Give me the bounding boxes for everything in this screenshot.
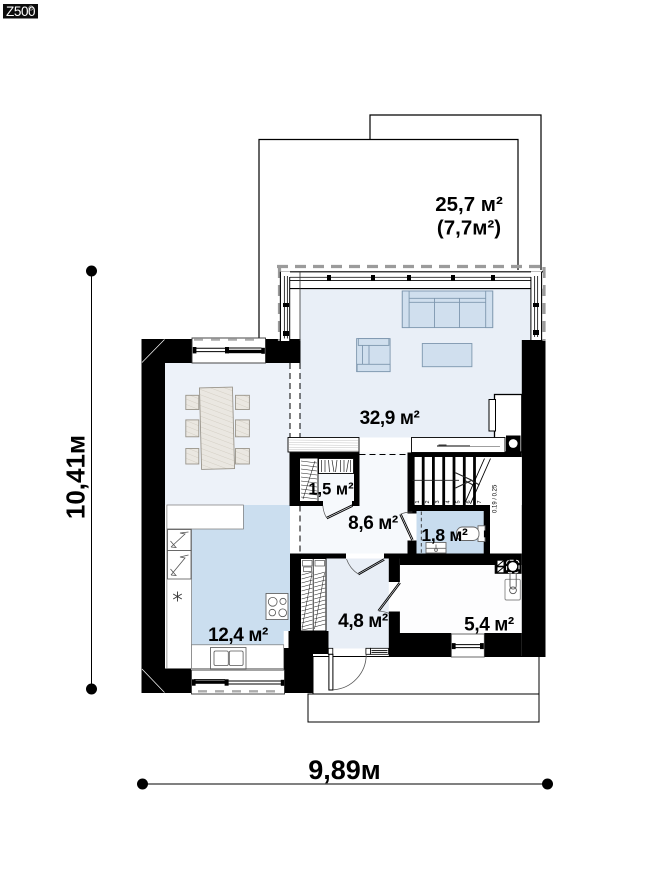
- svg-text:4: 4: [445, 500, 451, 503]
- svg-text:7: 7: [477, 500, 483, 503]
- svg-text:©: ©: [29, 5, 34, 13]
- svg-text:1: 1: [415, 500, 421, 503]
- svg-text:0.19 / 0.25: 0.19 / 0.25: [492, 484, 498, 513]
- svg-text:9,89м: 9,89м: [308, 755, 381, 785]
- svg-text:5,4 м²: 5,4 м²: [464, 615, 514, 636]
- svg-text:25,7 м²: 25,7 м²: [435, 193, 503, 216]
- svg-text:10,41м: 10,41м: [61, 435, 91, 519]
- svg-text:8,6 м²: 8,6 м²: [348, 513, 398, 534]
- svg-text:12,4 м²: 12,4 м²: [208, 625, 268, 646]
- svg-text:5: 5: [456, 500, 462, 503]
- svg-text:6: 6: [466, 500, 472, 503]
- svg-text:3: 3: [435, 500, 441, 503]
- svg-text:1,5 м²: 1,5 м²: [308, 481, 354, 499]
- svg-text:32,9 м²: 32,9 м²: [360, 408, 420, 429]
- svg-text:2: 2: [425, 500, 431, 503]
- svg-text:1,8 м²: 1,8 м²: [421, 525, 468, 545]
- svg-text:(7,7м²): (7,7м²): [437, 217, 501, 240]
- svg-text:4,8 м²: 4,8 м²: [338, 611, 388, 632]
